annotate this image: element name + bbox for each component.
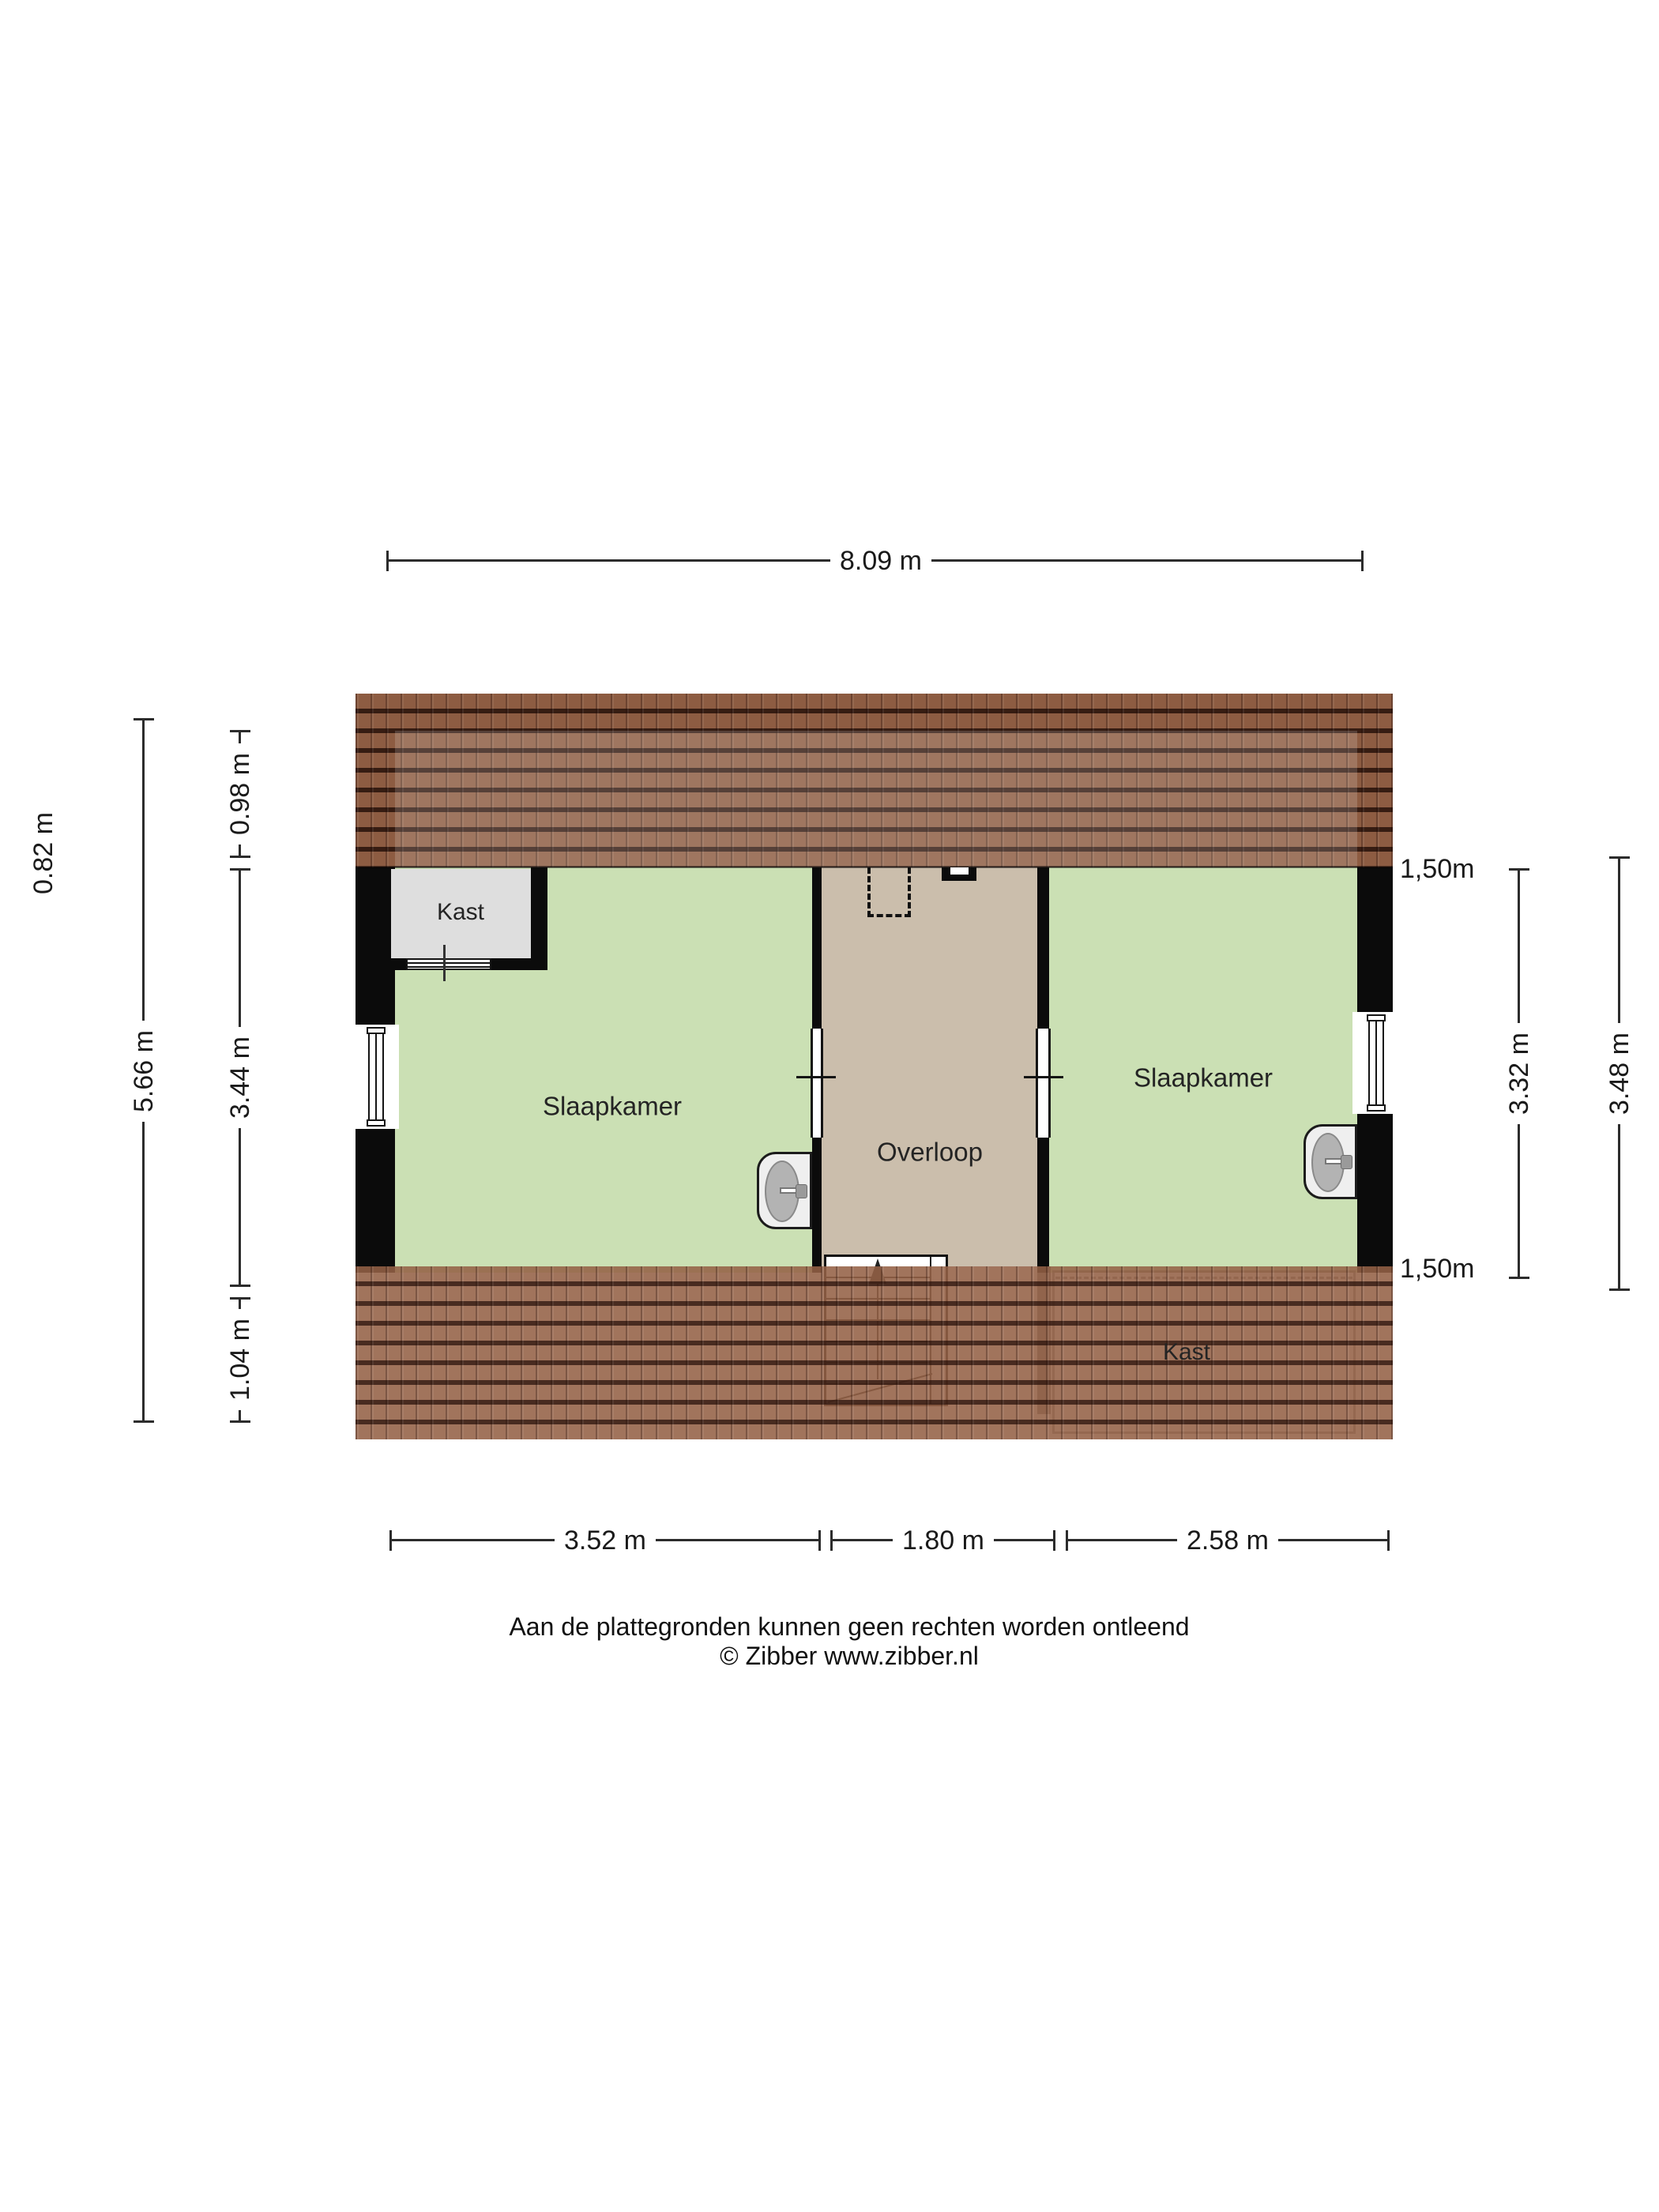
room-label-closet-top-left: Kast bbox=[437, 901, 484, 924]
dim-tick bbox=[1509, 868, 1529, 871]
room-label-landing: Overloop bbox=[877, 1139, 983, 1165]
closet-louvre-door-icon bbox=[406, 958, 491, 970]
sink-left-icon bbox=[757, 1152, 812, 1229]
wall-left-landing-upper bbox=[812, 867, 822, 1029]
window-right-icon bbox=[1368, 1014, 1384, 1112]
landing-floor bbox=[822, 867, 1037, 1266]
wall-right-landing-upper bbox=[1037, 867, 1049, 1029]
floorplan-page: Slaapkamer Overloop Slaapkamer Kast Kast… bbox=[0, 0, 1659, 2212]
window-right-glass-line bbox=[1375, 1016, 1377, 1110]
closet-top-left-wall bbox=[531, 867, 547, 970]
dim-label-left-bottom: 1.04 m bbox=[225, 1309, 255, 1410]
roof-band-top-haze bbox=[395, 731, 1357, 867]
footer-credit: © Zibber www.zibber.nl bbox=[20, 1642, 1659, 1671]
dim-label-bottom-right: 2.58 m bbox=[1177, 1525, 1278, 1556]
dim-tick bbox=[1609, 856, 1630, 859]
closet-door-stub-right bbox=[491, 958, 531, 970]
window-left-glass-line bbox=[375, 1029, 377, 1125]
window-right-cap-bottom bbox=[1367, 1104, 1386, 1112]
wall-right-landing-lower bbox=[1037, 1138, 1049, 1273]
door-left-frame bbox=[811, 1029, 823, 1138]
dim-tick bbox=[134, 718, 154, 720]
window-right-cap-top bbox=[1367, 1014, 1386, 1021]
sink-left-faucet bbox=[796, 1184, 807, 1198]
dim-tick bbox=[389, 1530, 392, 1551]
door-right-leaf bbox=[1024, 1076, 1063, 1078]
roof-band-bottom bbox=[355, 1266, 1393, 1439]
dim-tick bbox=[1609, 1288, 1630, 1291]
room-label-closet-bottom-right: Kast bbox=[1163, 1341, 1210, 1364]
door-right-frame bbox=[1036, 1029, 1051, 1138]
dim-tick bbox=[818, 1530, 821, 1551]
dim-tick bbox=[1509, 1277, 1529, 1279]
dim-tick bbox=[1361, 551, 1364, 571]
dim-tick bbox=[1066, 1530, 1068, 1551]
sink-left-faucet-line bbox=[780, 1187, 797, 1194]
closet-door-stub-left bbox=[391, 958, 406, 970]
dim-tick bbox=[230, 730, 250, 732]
dim-label-right-outer: 3.48 m bbox=[1604, 1023, 1635, 1124]
dim-tick bbox=[1053, 1530, 1055, 1551]
sink-right-faucet bbox=[1341, 1155, 1352, 1169]
wall-left-landing-lower bbox=[812, 1138, 822, 1273]
door-left-leaf bbox=[796, 1076, 836, 1078]
sink-right-faucet-line bbox=[1325, 1158, 1342, 1164]
dim-label-bottom-mid: 1.80 m bbox=[893, 1525, 994, 1556]
dim-label-left-outer: 0.82 m bbox=[28, 803, 58, 904]
height-mark-top: 1,50m bbox=[1400, 856, 1475, 882]
dim-tick bbox=[134, 1420, 154, 1423]
footer-disclaimer: Aan de plattegronden kunnen geen rechten… bbox=[20, 1612, 1659, 1642]
loft-hatch-dashed-icon bbox=[867, 867, 911, 917]
dim-label-bottom-left: 3.52 m bbox=[555, 1525, 656, 1556]
dim-tick bbox=[230, 1297, 250, 1300]
window-left-icon bbox=[368, 1027, 384, 1127]
dim-tick bbox=[230, 856, 250, 858]
sink-right-icon bbox=[1303, 1124, 1357, 1199]
height-mark-bottom: 1,50m bbox=[1400, 1255, 1475, 1282]
dim-label-left-top: 0.98 m bbox=[225, 743, 255, 845]
dim-tick bbox=[386, 551, 389, 571]
dim-tick bbox=[830, 1530, 833, 1551]
dim-label-left-total: 5.66 m bbox=[129, 1021, 159, 1122]
window-left-cap-bottom bbox=[367, 1119, 386, 1127]
dim-tick bbox=[230, 868, 250, 871]
room-label-bedroom-right: Slaapkamer bbox=[1134, 1065, 1273, 1091]
dim-label-left-mid: 3.44 m bbox=[225, 1027, 255, 1128]
chimney-stub-notch bbox=[950, 867, 969, 875]
room-label-bedroom-left: Slaapkamer bbox=[543, 1093, 682, 1119]
closet-door-pivot-line bbox=[443, 945, 446, 981]
window-left-cap-top bbox=[367, 1027, 386, 1034]
dim-tick bbox=[230, 1285, 250, 1287]
dim-tick bbox=[230, 1420, 250, 1423]
dim-tick bbox=[1387, 1530, 1390, 1551]
dim-label-right-inner: 3.32 m bbox=[1504, 1023, 1534, 1124]
dim-label-top-width: 8.09 m bbox=[830, 546, 931, 576]
